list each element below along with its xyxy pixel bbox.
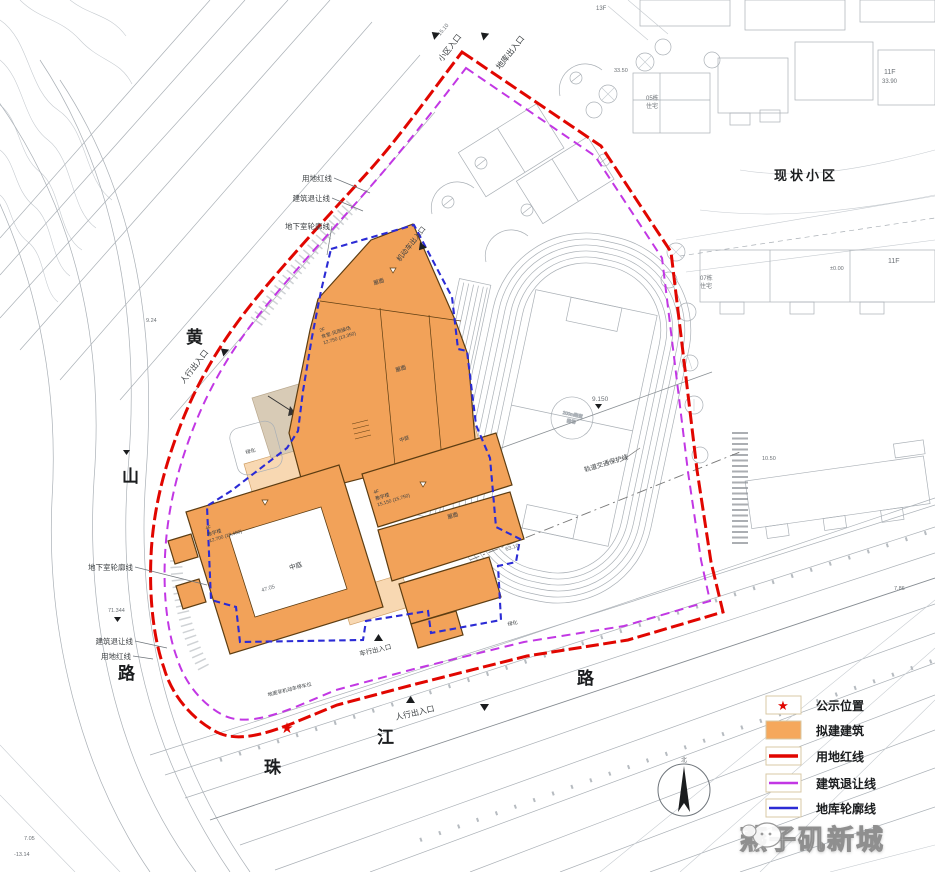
svg-text:绿化: 绿化	[507, 619, 518, 628]
legend-item-setback: 建筑退让线	[766, 774, 876, 792]
svg-text:地下室轮廓线: 地下室轮廓线	[285, 221, 330, 231]
svg-text:建筑退让线: 建筑退让线	[815, 776, 876, 791]
legend-item-notice: ★ 公示位置	[766, 696, 864, 714]
road-west-curves	[0, 60, 250, 872]
svg-text:05栋: 05栋	[646, 94, 659, 102]
legend-item-proposed: 拟建建筑	[766, 721, 864, 739]
svg-text:地库轮廓线: 地库轮廓线	[816, 801, 876, 816]
svg-text:07栋: 07栋	[700, 274, 713, 282]
proposed-buildings	[168, 224, 524, 654]
svg-text:地库出入口: 地库出入口	[494, 34, 527, 72]
svg-text:黄: 黄	[186, 327, 203, 347]
svg-text:绿化: 绿化	[245, 447, 256, 456]
road-name-zhujiang: 珠 江 路	[264, 668, 595, 777]
existing-estate-label: 现状小区	[774, 168, 838, 183]
notice-star-marker: ★	[280, 720, 293, 737]
svg-text:用地红线: 用地红线	[101, 651, 131, 661]
svg-text:人行出入口: 人行出入口	[178, 348, 211, 386]
svg-text:15.10: 15.10	[437, 23, 450, 37]
svg-text:公示位置: 公示位置	[816, 698, 864, 713]
svg-text:地下室轮廓线: 地下室轮廓线	[88, 562, 133, 572]
svg-text:33.90: 33.90	[882, 79, 898, 85]
site-plan-canvas: 200m跑道 操场	[0, 0, 935, 872]
svg-text:10.50: 10.50	[762, 456, 776, 462]
legend-item-redline: 用地红线	[766, 747, 864, 765]
north-label: 北	[681, 756, 687, 764]
legend-star-icon: ★	[777, 698, 789, 713]
legend-item-garage: 地库轮廓线	[766, 799, 876, 817]
svg-text:±0.00: ±0.00	[830, 266, 844, 272]
svg-text:路: 路	[118, 663, 136, 683]
svg-text:13F: 13F	[596, 6, 607, 12]
svg-text:车行出入口: 车行出入口	[358, 642, 392, 658]
existing-building-labels: 05栋 住宅 07栋 住宅 11F 33.90 11F 13F	[596, 6, 900, 290]
svg-text:9.150: 9.150	[592, 396, 609, 403]
svg-text:-13.14: -13.14	[14, 852, 30, 858]
svg-text:地面非机动车停车位: 地面非机动车停车位	[267, 681, 312, 699]
svg-text:人行出入口: 人行出入口	[394, 703, 435, 722]
svg-text:轨道交通保护线: 轨道交通保护线	[583, 452, 630, 474]
svg-text:江: 江	[377, 728, 394, 747]
svg-text:11F: 11F	[884, 69, 896, 76]
watermark-bubbles-icon	[740, 818, 784, 856]
svg-text:住宅: 住宅	[646, 102, 658, 110]
svg-text:路: 路	[577, 668, 595, 688]
svg-text:71.344: 71.344	[108, 608, 125, 614]
svg-text:建筑退让线: 建筑退让线	[96, 636, 134, 646]
svg-text:7.86: 7.86	[894, 586, 905, 592]
watermark: 燕子矶新城	[740, 818, 885, 857]
contour-lines	[0, 0, 132, 302]
north-compass: 北	[658, 756, 710, 816]
svg-text:拟建建筑: 拟建建筑	[816, 723, 864, 738]
svg-text:住宅: 住宅	[700, 282, 712, 290]
road-name-huangshan: 黄 山 路	[118, 327, 203, 683]
svg-text:珠: 珠	[264, 758, 282, 777]
svg-text:建筑退让线: 建筑退让线	[293, 193, 331, 203]
svg-text:9.24: 9.24	[146, 318, 157, 324]
svg-text:山: 山	[122, 467, 139, 486]
svg-text:用地红线: 用地红线	[302, 173, 332, 183]
svg-text:33.50: 33.50	[614, 68, 628, 74]
svg-text:11F: 11F	[888, 258, 900, 265]
svg-text:用地红线: 用地红线	[815, 749, 864, 764]
svg-text:7.05: 7.05	[24, 836, 35, 842]
